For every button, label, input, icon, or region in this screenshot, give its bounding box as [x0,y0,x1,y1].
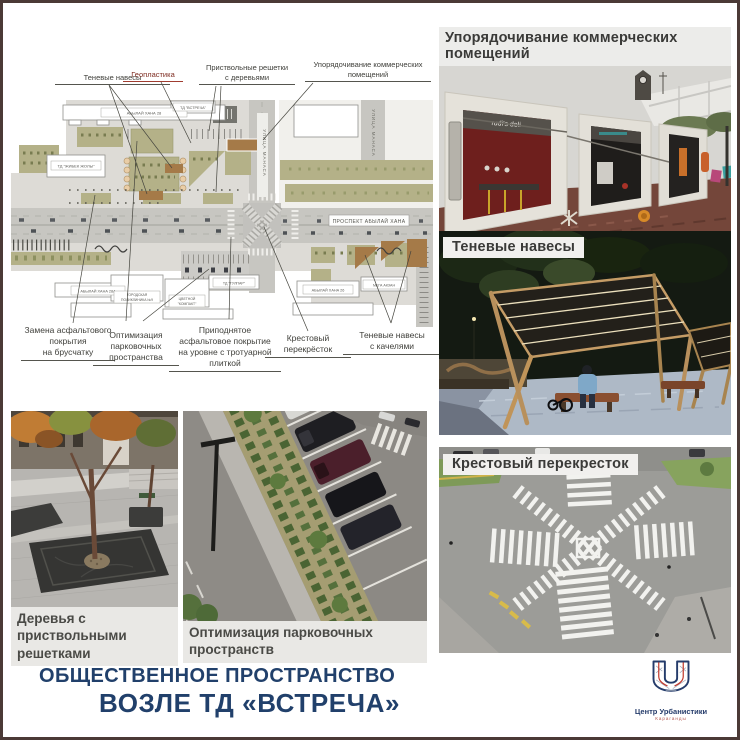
urban-center-logo-subtitle: Караганды [625,716,717,721]
kiosk-2 [579,114,651,216]
callout-line: перекрёсток [265,344,351,355]
callout-line: Упорядочивание коммерческих [305,60,431,70]
caption-line: решетками [17,645,172,662]
callout-line: плиткой [169,358,281,369]
callout-commercial: Упорядочивание коммерческих помещений [305,60,431,82]
callout-text: Геопластика [131,70,175,79]
photo-trees-caption: Деревья с приствольными решетками [11,607,178,666]
photo-intersection-title: Крестовый перекресток [443,454,638,475]
building-label: ГОРОДСКАЯ [127,293,148,297]
urban-center-logo-icon [643,657,699,701]
street-label-manasa-2: УЛИЦА МАНАСА [371,109,376,157]
callout-parking-opt: Оптимизация парковочных пространства [93,330,179,366]
photo-kiosks-title: Упорядочивание коммерческих помещений [439,27,731,66]
photo-parking-image [183,411,427,621]
poster: АБЫЛАЙ ХАНА 28 ТД "ВСТРЕЧА" ТД "ЖИБЕК ЖО… [0,0,740,740]
urban-center-logo-name: Центр Урбанистики [625,707,717,716]
building-label: "КОМПАКТ" [178,302,197,306]
photo-canopies-image [439,231,731,435]
caption-line: Деревья с приствольными [17,610,172,645]
photo-parking: Оптимизация парковочных пространств [183,411,427,663]
photo-trees: Деревья с приствольными решетками [11,411,178,666]
callout-line: парковочных [93,341,179,352]
building-label: ТД "ЖИБЕК ЖОЛЫ" [57,164,95,169]
photo-canopies: Теневые навесы [439,231,731,435]
poster-title-line2: ВОЗЛЕ ТД «ВСТРЕЧА» [99,688,400,719]
photo-canopies-title: Теневые навесы [443,237,584,258]
kiosk-3 [659,124,707,206]
callout-line: пространства [93,352,179,363]
callout-cross-intersection: Крестовый перекрёсток [265,333,351,358]
kiosk-1: rudi's deli [445,92,567,236]
callout-tree-grates: Приствольные решетки с деревьями [199,63,295,85]
site-plan: АБЫЛАЙ ХАНА 28 ТД "ВСТРЕЧА" ТД "ЖИБЕК ЖО… [11,55,433,403]
building-label: ПОЛИКЛИНИКА №9 [121,298,153,302]
building-label: АБЫЛАЙ ХАНА 26 [312,289,345,293]
callout-line: Оптимизация [93,330,179,341]
callout-line: Приствольные решетки [199,63,295,73]
facade-and-foliage [11,411,178,469]
photo-parking-caption: Оптимизация парковочных пространств [183,621,427,663]
photo-kiosks-image: rudi's deli [439,66,731,242]
urban-center-logo: Центр Урбанистики Караганды [625,657,717,721]
poster-title-line1: ОБЩЕСТВЕННОЕ ПРОСТРАНСТВО [39,665,395,688]
photo-intersection-image [439,447,731,653]
callout-line: Крестовый [265,333,351,344]
callout-line: с деревьями [199,73,295,83]
photo-kiosks: Упорядочивание коммерческих помещений [439,27,731,242]
building-label: ТД "ТУЛПАР" [223,282,246,286]
callout-line: помещений [305,70,431,80]
photo-trees-image [11,411,178,607]
building-label: ЦВЕТНОЙ [179,297,196,301]
photo-intersection: Крестовый перекресток [439,447,731,653]
building-label: ТД "ВСТРЕЧА" [180,106,207,110]
building-label: АБЫЛАЙ ХАНА 28А [80,290,116,294]
callout-line: Теневые навесы [343,330,441,341]
callout-swing-canopies: Теневые навесы с качелями [343,330,441,355]
callout-line: с качелями [343,341,441,352]
street-label-abylai: ПРОСПЕКТ АБЫЛАЙ ХАНА [333,217,406,225]
callout-geoplastics: Геопластика [123,70,183,82]
